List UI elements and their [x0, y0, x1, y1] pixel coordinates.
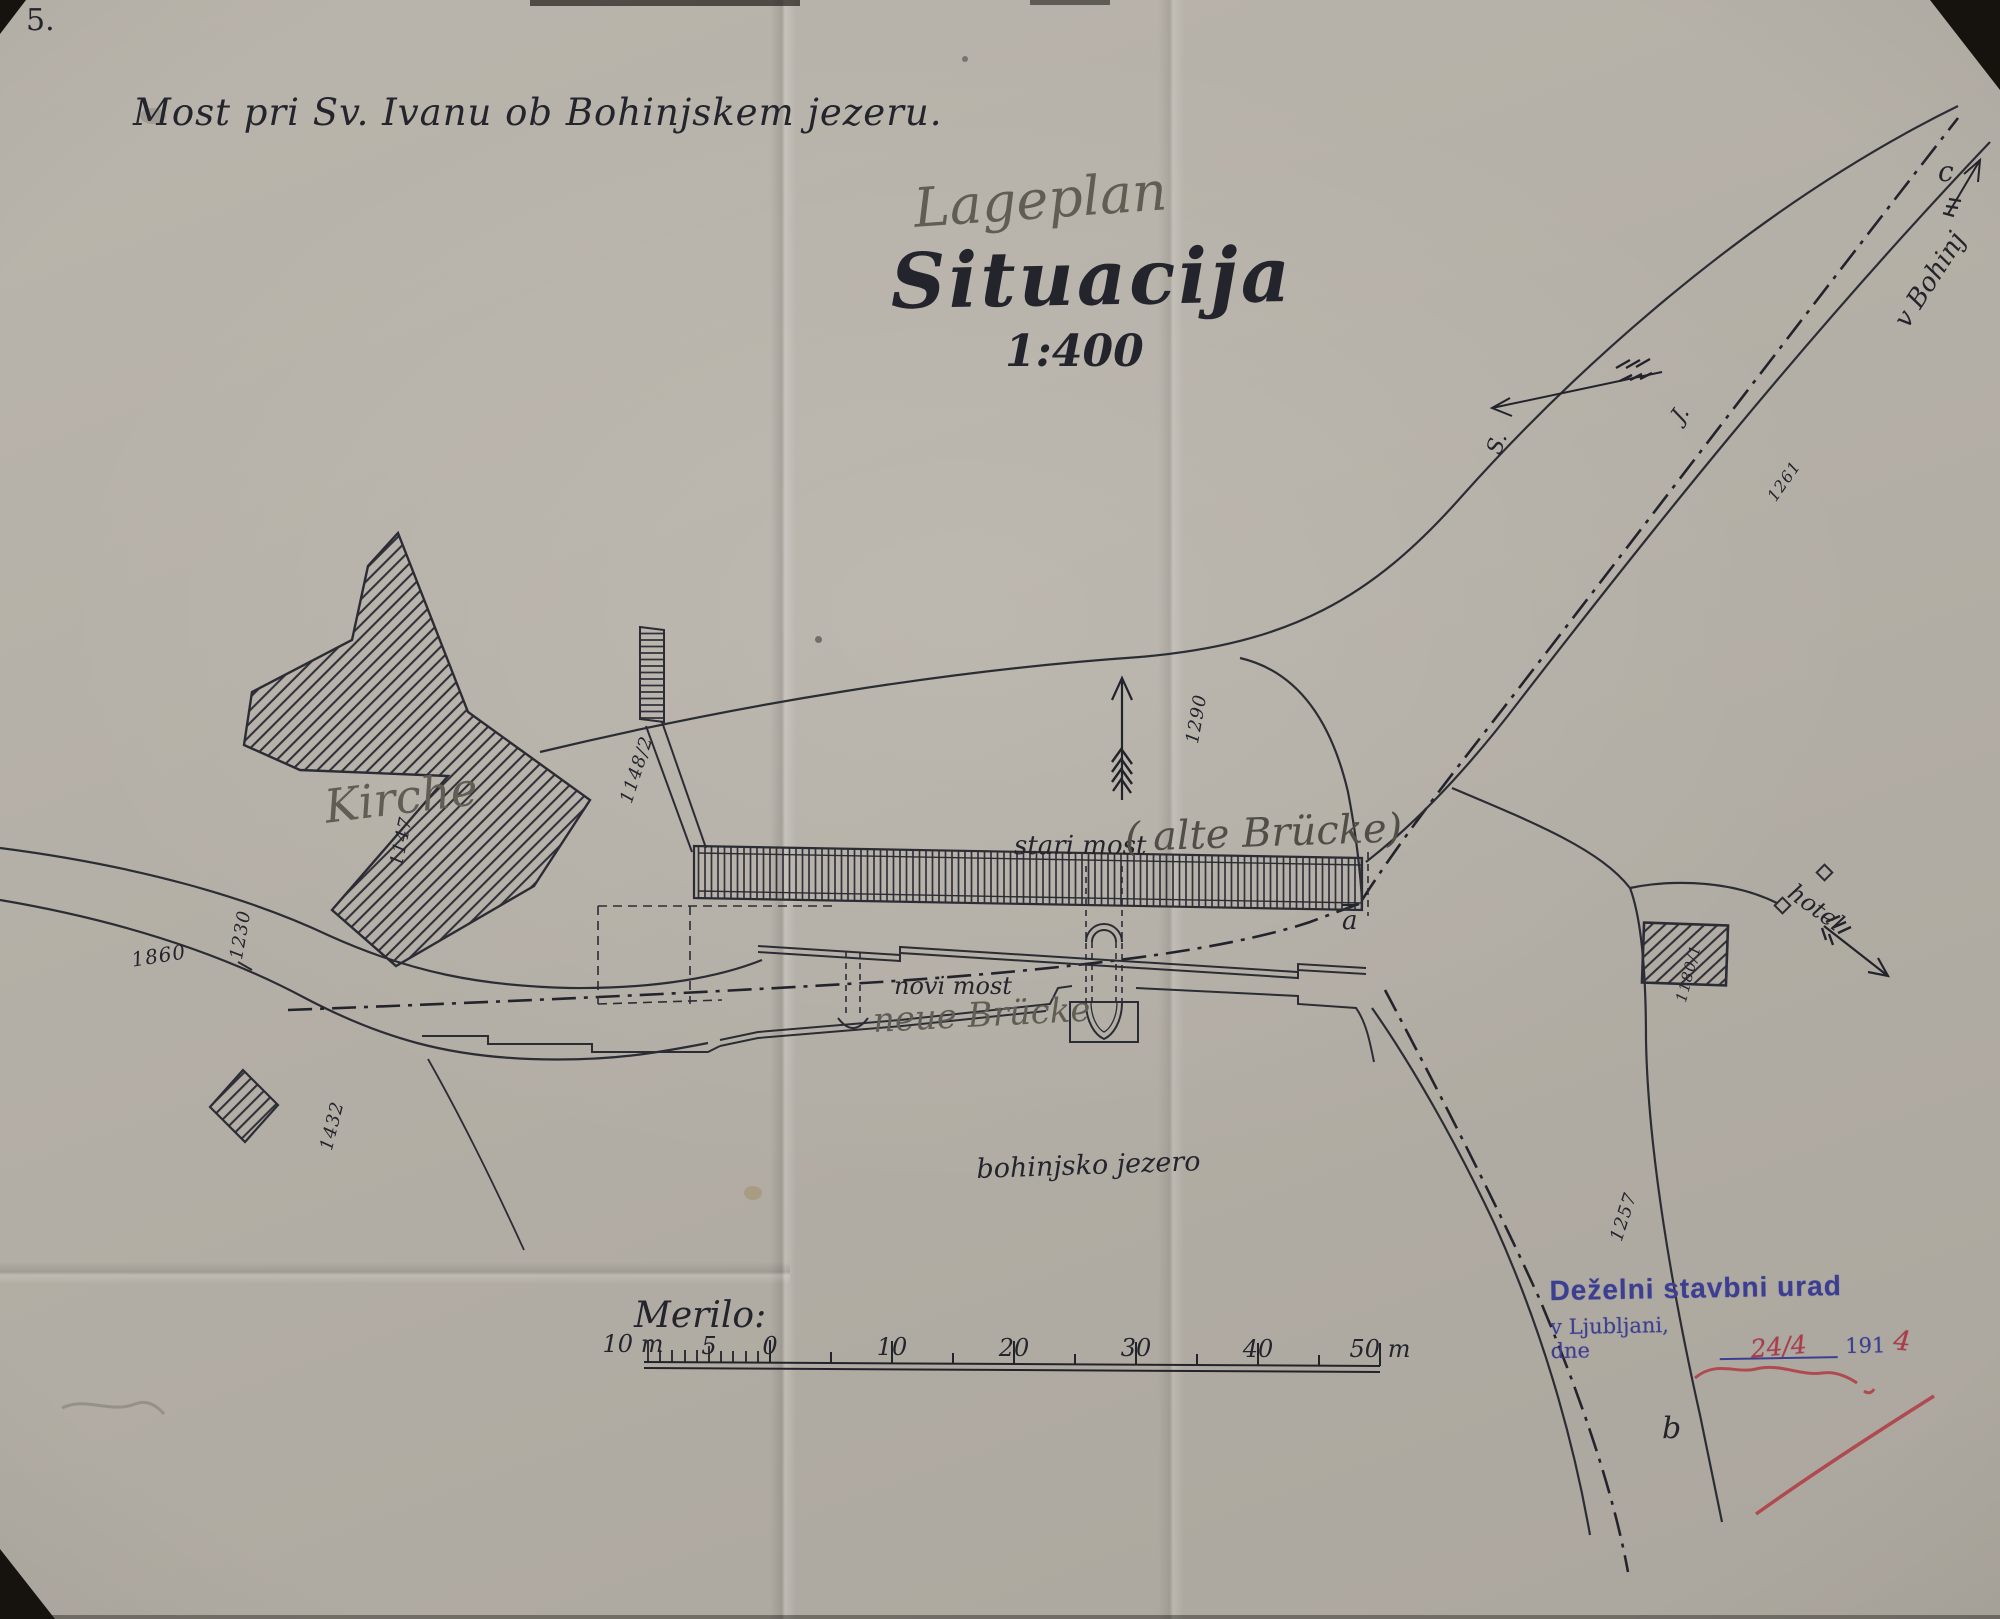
lake-label: bohinjsko jezero: [976, 1148, 1201, 1183]
red-annotations: [1695, 1367, 1934, 1514]
church-building: [244, 533, 590, 966]
new-bridge-label-german: neue Brücke: [872, 993, 1091, 1038]
small-building-marker: [210, 962, 278, 1142]
stamp-office-name: Deželni stavbni urad: [1549, 1269, 1910, 1307]
official-stamp: Deželni stavbni urad v Ljubljani, dne 24…: [1549, 1269, 1910, 1363]
point-a-label: a: [1342, 908, 1358, 934]
bohinj-road: [540, 106, 1990, 900]
sheet-edge-shadow: [0, 1615, 2000, 1619]
scale-tick-label: 0: [762, 1334, 777, 1358]
document-title: Most pri Sv. Ivanu ob Bohinjskem jezeru.: [133, 94, 942, 131]
page-number: 5.: [26, 6, 55, 36]
scale-bar-title: Merilo:: [634, 1298, 766, 1334]
point-b-label: b: [1662, 1414, 1681, 1444]
scanned-site-plan: 5. Most pri Sv. Ivanu ob Bohinjskem jeze…: [0, 0, 2000, 1619]
stamp-handwritten-year-digit: 4: [1892, 1325, 1912, 1357]
pencil-scribble: [62, 1402, 164, 1414]
stamp-date-blank: 24/4: [1719, 1327, 1837, 1360]
stamp-handwritten-date: 24/4: [1749, 1330, 1807, 1364]
scale-tick-label: 40: [1243, 1337, 1274, 1361]
scale-tick-label: 5: [701, 1334, 716, 1358]
scale-tick-label: 10: [877, 1335, 908, 1359]
south-road: [1372, 788, 1777, 1535]
scale-tick-label: 30: [1121, 1336, 1152, 1360]
scale-tick-label: 20: [999, 1336, 1030, 1360]
stamp-year-prefix: 191: [1845, 1333, 1886, 1358]
scale-tick-label: 10 m: [603, 1332, 664, 1356]
center-direction-arrow: [1112, 678, 1132, 800]
sheet-edge-gap: [1030, 0, 1110, 5]
sheet-edge-gap: [530, 0, 800, 6]
north-arrow: [1492, 359, 1662, 416]
map-scale-ratio: 1:400: [1005, 330, 1144, 374]
stamp-place-date-text: v Ljubljani, dne: [1550, 1312, 1712, 1363]
title-situacija: Situacija: [890, 237, 1294, 320]
point-c-label: c: [1938, 158, 1954, 186]
scale-tick-label: 50 m: [1350, 1337, 1411, 1361]
old-bridge-label-german: ( alte Brücke): [1124, 808, 1403, 858]
